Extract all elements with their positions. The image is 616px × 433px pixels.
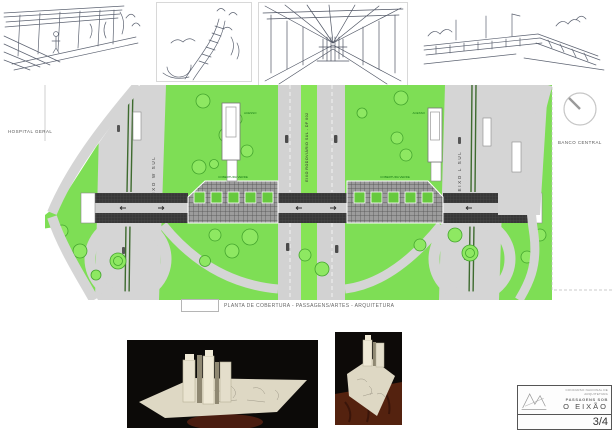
car-icon — [335, 245, 338, 253]
median-green — [301, 85, 317, 300]
model-photo-tall — [335, 332, 402, 425]
north-arrow-icon — [564, 93, 596, 125]
annotation-access-left: ACESSO — [244, 111, 257, 115]
title-block-top: CONCURSO NACIONAL DE ARQUITETURA PASSAGE… — [518, 386, 611, 415]
presentation-board: EIXO W SUL EIXO L SUL EIXO RODOVIÁRIO SU… — [0, 0, 616, 433]
car-icon — [334, 135, 337, 143]
sketch-elevated-drawing — [416, 8, 612, 78]
underpass-roof-left — [188, 181, 278, 223]
pedestrian-crossing — [81, 193, 542, 223]
car-icon — [285, 135, 288, 143]
bus-shelter-banco — [512, 142, 521, 172]
sketch-aerial-axis-drawing — [157, 3, 251, 81]
site-plan: EIXO W SUL EIXO L SUL EIXO RODOVIÁRIO SU… — [0, 85, 616, 300]
title-block: CONCURSO NACIONAL DE ARQUITETURA PASSAGE… — [517, 385, 612, 430]
bus-shelter-west — [133, 112, 141, 140]
car-icon — [122, 247, 125, 254]
label-road-center: EIXO RODOVIÁRIO SUL - DF 002 — [305, 112, 309, 181]
annotation-roof-left: COBERTURA VERDE — [218, 175, 248, 179]
road-eixao-center: EIXO RODOVIÁRIO SUL - DF 002 — [278, 85, 345, 300]
label-road-east: EIXO L SUL — [457, 151, 462, 192]
sketch-interior-drawing — [259, 3, 407, 85]
car-icon — [117, 125, 120, 132]
sketch-under-deck-drawing — [2, 4, 152, 80]
annotation-roof-right: COBERTURA VERDE — [380, 175, 410, 179]
label-road-west: EIXO W SUL — [151, 156, 156, 199]
road-eixo-l: EIXO L SUL — [439, 85, 506, 300]
car-icon — [286, 243, 289, 251]
competition-name: CONCURSO NACIONAL DE ARQUITETURA — [547, 389, 608, 397]
plan-caption: PLANTA DE COBERTURA - PASSAGENS/ARTES - … — [224, 303, 394, 309]
label-hospital: HOSPITAL GERAL — [8, 129, 52, 134]
bus-shelter-east — [483, 118, 491, 146]
model-photo-tall-image — [335, 332, 402, 425]
label-banco: BANCO CENTRAL — [558, 140, 602, 145]
underpass-roof-right — [347, 181, 443, 223]
sketch-elevated-structure — [416, 8, 612, 78]
model-photo-wide-image — [127, 340, 318, 428]
title-block-texts: CONCURSO NACIONAL DE ARQUITETURA PASSAGE… — [547, 389, 608, 411]
caption-legend-box — [181, 299, 219, 312]
annotation-access-right: ACESSO — [412, 111, 425, 115]
sketch-under-deck-perspective — [2, 4, 152, 80]
crossing-segment-west — [95, 193, 188, 223]
stair-landing-west — [81, 193, 95, 223]
competition-logo-icon — [521, 388, 547, 412]
project-name: O EIXÃO — [547, 402, 608, 411]
sketch-aerial-axis — [156, 2, 252, 82]
title-block-bottom: 3/4 — [518, 415, 611, 429]
sheet-number: 3/4 — [593, 416, 608, 428]
model-photo-wide — [127, 340, 318, 428]
car-icon — [458, 137, 461, 144]
crossing-segment-center — [278, 193, 347, 223]
sketch-interior-perspective — [258, 2, 408, 86]
